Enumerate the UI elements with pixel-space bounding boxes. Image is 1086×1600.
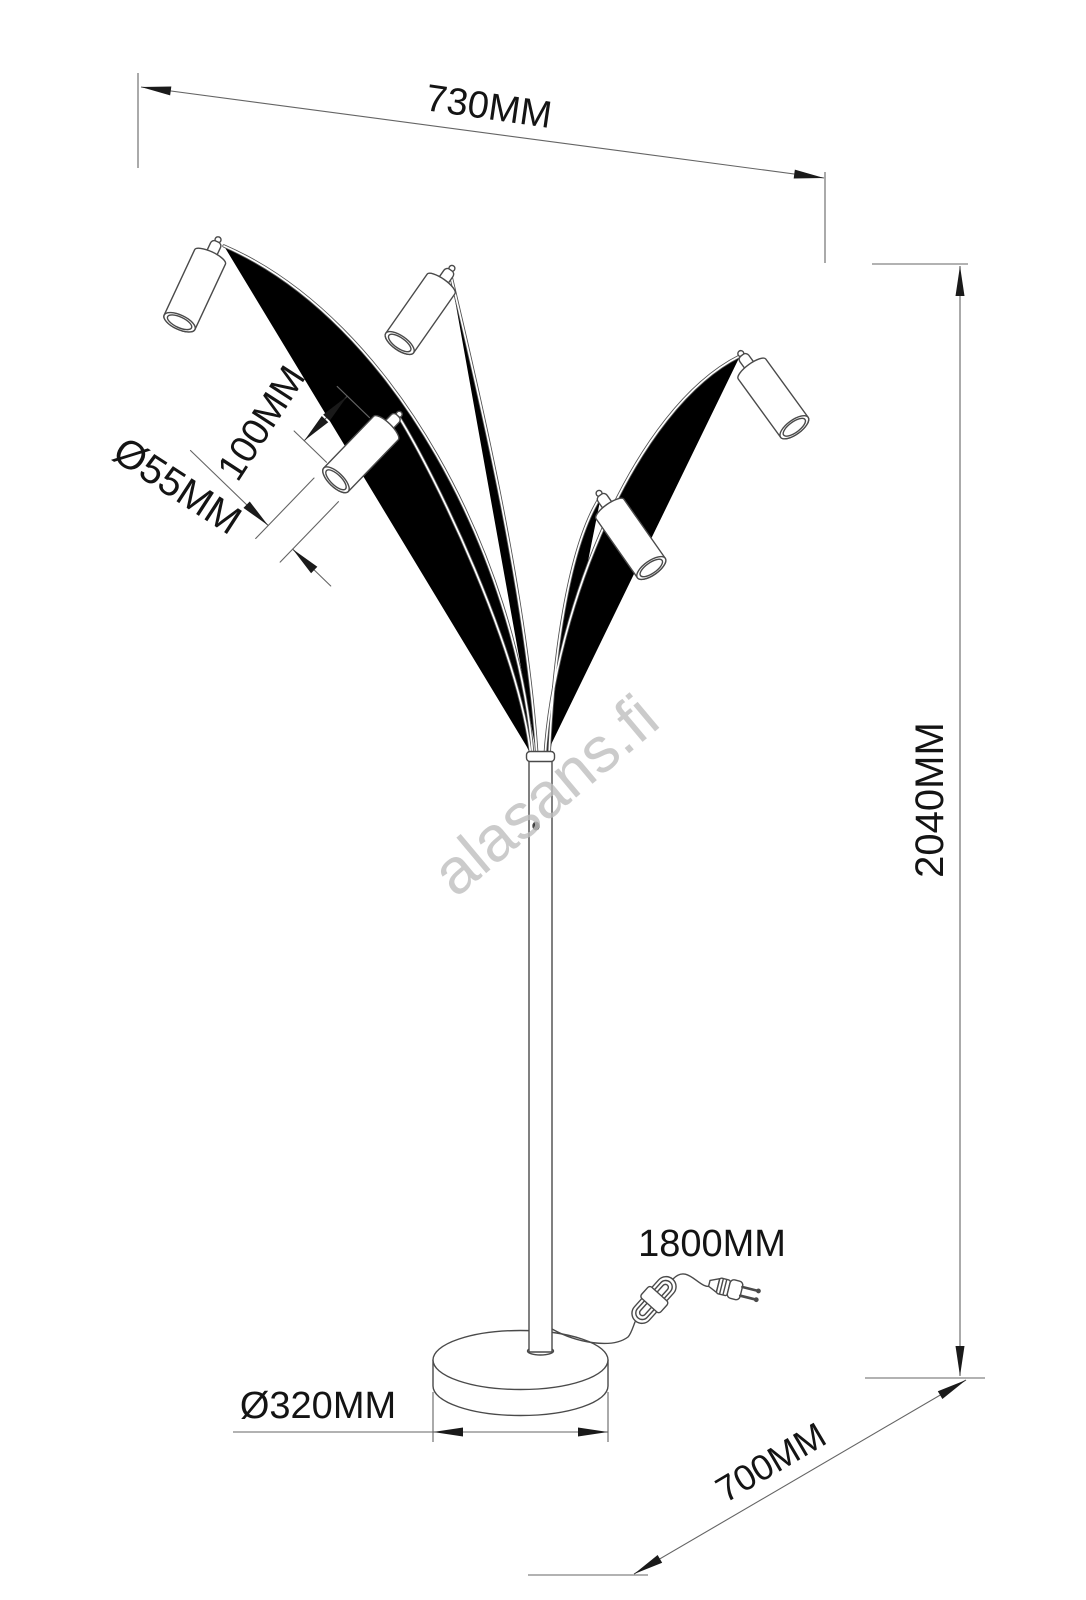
plug xyxy=(707,1274,761,1305)
technical-drawing-page: 730MM 2040MM 700MM Ø320MM 1800MM 100MM Ø… xyxy=(0,0,1086,1600)
dim-100-label: 100MM xyxy=(210,359,314,488)
lamp-base xyxy=(433,1331,608,1416)
dim-2040-label: 2040MM xyxy=(908,722,952,878)
cord-coil xyxy=(626,1270,683,1329)
dim-700-label: 700MM xyxy=(709,1414,833,1510)
dim-1800-label: 1800MM xyxy=(638,1223,786,1265)
power-cord xyxy=(552,1270,761,1343)
dim-730-label: 730MM xyxy=(423,77,554,137)
lamp-head-2 xyxy=(382,256,468,358)
dim-320-label: Ø320MM xyxy=(240,1385,396,1427)
floor-lamp-dimension-drawing: 730MM 2040MM 700MM Ø320MM 1800MM 100MM Ø… xyxy=(0,0,1086,1600)
lamp-arms xyxy=(224,246,740,757)
